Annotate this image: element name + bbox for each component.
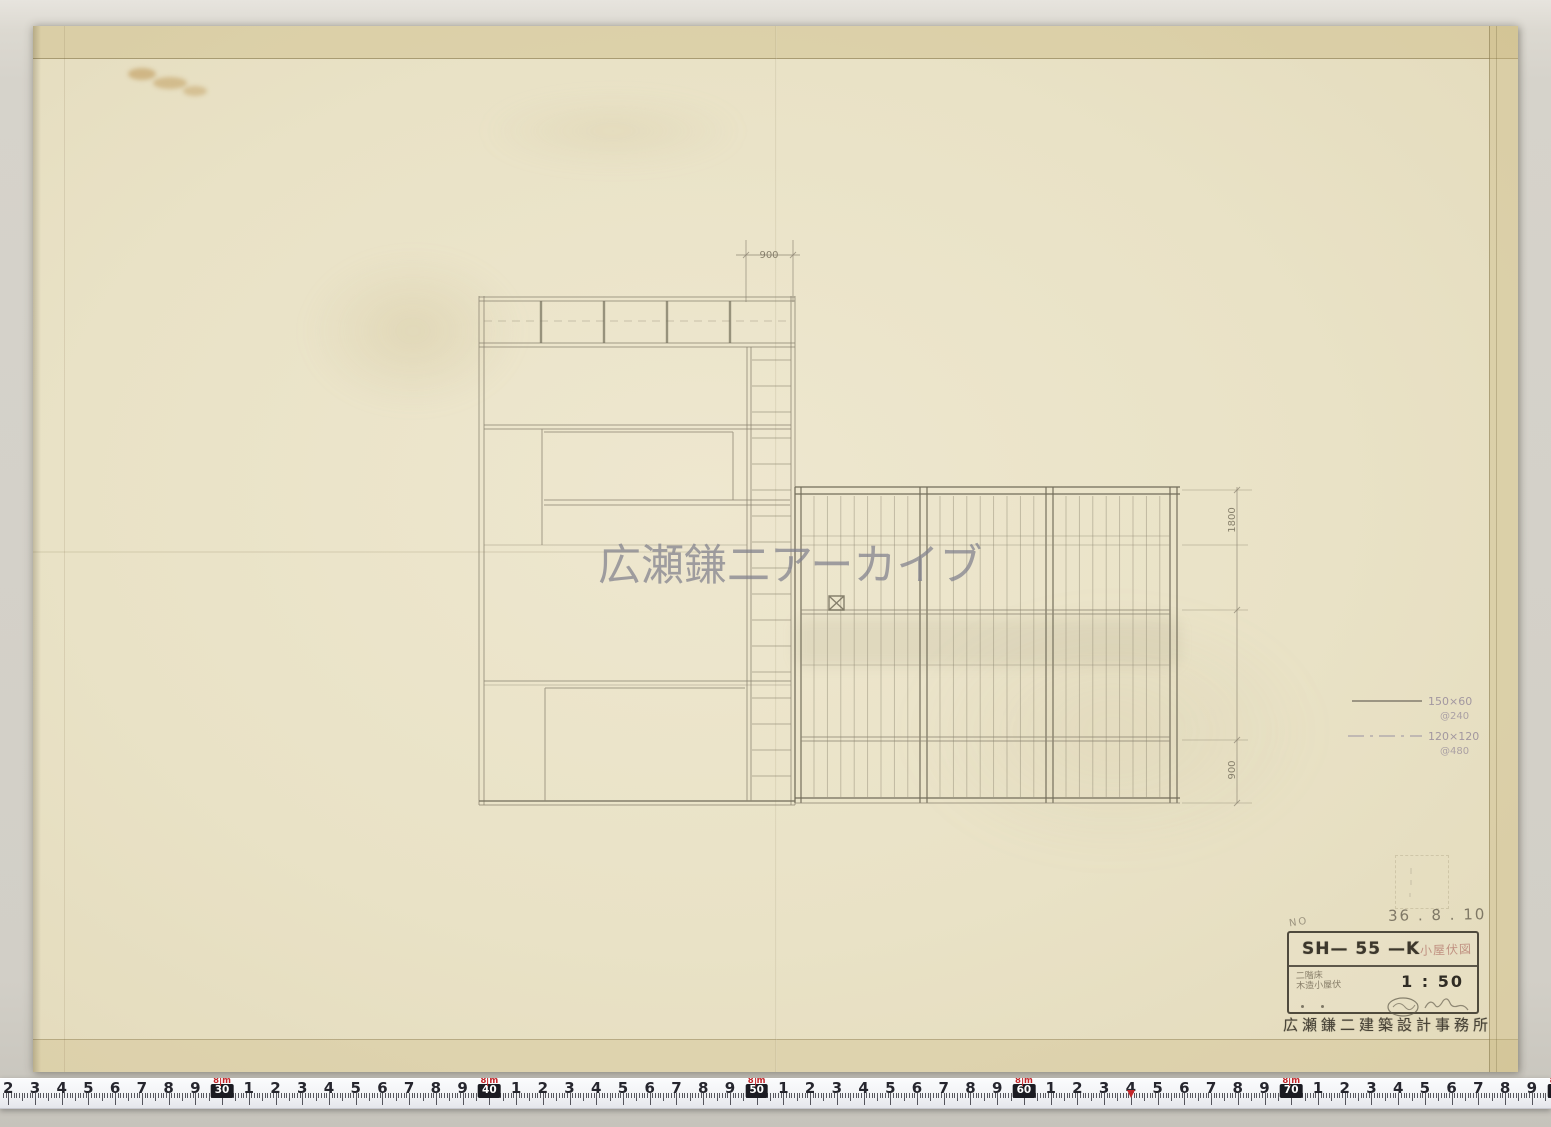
note-line-2: 木造小屋伏 (1296, 980, 1341, 992)
ruler-number: 9 (1527, 1079, 1537, 1097)
ruler-number: 2 (3, 1079, 13, 1097)
ruler-tick (1387, 1093, 1388, 1098)
ruler-tick (1305, 1093, 1306, 1101)
ruler-tick (54, 1093, 55, 1098)
ruler-number: 2 (1339, 1079, 1349, 1097)
ruler-tick (976, 1093, 977, 1098)
ruler-tick (1497, 1093, 1498, 1098)
ruler-tick (187, 1093, 188, 1098)
ruler-tick (1198, 1093, 1199, 1101)
ruler-tick (896, 1093, 897, 1098)
ruler-number: 6 (645, 1079, 655, 1097)
ruler-tick (588, 1093, 589, 1098)
ruler-tick (1061, 1093, 1062, 1098)
legend-spacing-1: @240 (1440, 711, 1469, 722)
ruler-tick (842, 1093, 843, 1098)
ruler-meter-flag: 8m (748, 1078, 766, 1086)
ruler-tick (342, 1093, 343, 1101)
ruler-tick (802, 1093, 803, 1098)
ruler-tick (1358, 1093, 1359, 1101)
ruler-tick (524, 1093, 525, 1098)
ruler-tick (401, 1093, 402, 1098)
ruler-tick (1059, 1093, 1060, 1098)
ruler-tick (508, 1093, 509, 1098)
ruler-tick (741, 1093, 742, 1098)
ruler-tick (1005, 1093, 1006, 1098)
ruler-tick (1412, 1093, 1413, 1101)
ruler-tick (174, 1093, 175, 1098)
ruler-number: 3 (564, 1079, 574, 1097)
ruler-tick (898, 1093, 899, 1098)
ruler-tick (639, 1093, 640, 1098)
ruler-tick (1142, 1093, 1143, 1098)
meter-flag-digit: 8 (1015, 1078, 1021, 1086)
ruler-number: 7 (137, 1079, 147, 1097)
ruler-tick (1323, 1093, 1324, 1098)
ruler-tick (906, 1093, 907, 1098)
title-block-top-row: SH— 55 —K 小屋伏図 (1289, 933, 1477, 967)
ruler-tick (1166, 1093, 1167, 1098)
ruler-tick (345, 1093, 346, 1098)
ruler-tick (447, 1093, 448, 1098)
ruler-tick (631, 1093, 632, 1098)
ruler-tick (1326, 1093, 1327, 1098)
ruler-tick (179, 1093, 180, 1098)
ruler-tick (254, 1093, 255, 1098)
ruler-tick (1093, 1093, 1094, 1098)
ruler-tick (238, 1093, 239, 1098)
ruler-tick (420, 1093, 421, 1098)
ruler-tick (153, 1093, 154, 1098)
ruler-number: 5 (885, 1079, 895, 1097)
ruler-tick (1470, 1093, 1471, 1098)
ruler-tick (444, 1093, 445, 1098)
ruler-tick (102, 1093, 103, 1101)
ruler-tick (848, 1093, 849, 1098)
ruler-tick (1224, 1093, 1225, 1101)
ruler-tick (529, 1093, 530, 1101)
ruler-tick (562, 1093, 563, 1098)
ruler-tick (94, 1093, 95, 1098)
ruler-tick (1227, 1093, 1228, 1098)
ruler-tick (46, 1093, 47, 1098)
ruler-tick (185, 1093, 186, 1098)
ruler-tick (22, 1093, 23, 1101)
ruler-tick (586, 1093, 587, 1098)
legend: 150×60 @240 120×120 @480 (1348, 695, 1479, 757)
tape-measure: 23456789308m123456789408m123456789508m12… (0, 1078, 1551, 1109)
ruler-tick (1361, 1093, 1362, 1098)
x-brace-symbol (829, 596, 844, 610)
ruler-number: 8 (1233, 1079, 1243, 1097)
ruler-number: 9 (725, 1079, 735, 1097)
ruler-tick (714, 1093, 715, 1098)
ruler-tick (909, 1093, 910, 1098)
ruler-tick (289, 1093, 290, 1101)
ruler-decade-box: 30 (211, 1084, 234, 1098)
ruler-tick (473, 1093, 474, 1098)
ruler-tick (1067, 1093, 1068, 1098)
ruler-tick (1537, 1093, 1538, 1098)
ruler-tick (67, 1093, 68, 1098)
right-upper-dimension-value: 1800 (1227, 507, 1238, 532)
ruler-tick (668, 1093, 669, 1098)
ruler-decade-box: 80 (1547, 1084, 1551, 1098)
ruler-tick (989, 1093, 990, 1098)
ruler-tick (398, 1093, 399, 1098)
ruler-tick (1492, 1093, 1493, 1101)
meter-flag-unit: m (1291, 1078, 1300, 1086)
ruler-tick (425, 1093, 426, 1098)
legend-spacing-2: @480 (1440, 746, 1469, 757)
ruler-tick (1441, 1093, 1442, 1098)
legend-label-1: 150×60 (1428, 695, 1472, 708)
ruler-tick (43, 1093, 44, 1098)
ruler-tick (612, 1093, 613, 1098)
legend-label-2: 120×120 (1428, 730, 1479, 743)
ruler-tick (316, 1093, 317, 1101)
ruler-tick (449, 1093, 450, 1101)
ruler-number: 7 (1473, 1079, 1483, 1097)
ruler-tick (1468, 1093, 1469, 1098)
ruler-number: 3 (1099, 1079, 1109, 1097)
ruler-tick (634, 1093, 635, 1098)
ruler-tick (1494, 1093, 1495, 1098)
ruler-tick (1310, 1093, 1311, 1098)
ruler-tick (1417, 1093, 1418, 1098)
ruler-tick (1278, 1093, 1279, 1101)
ruler-tick (441, 1093, 442, 1098)
ruler-tick (957, 1093, 958, 1101)
ruler-tick (711, 1093, 712, 1098)
ruler-tick (1112, 1093, 1113, 1098)
ruler-tick (209, 1093, 210, 1101)
ruler-tick (578, 1093, 579, 1098)
ruler-tick (687, 1093, 688, 1098)
ruler-tick (1216, 1093, 1217, 1098)
ruler-tick (743, 1093, 744, 1101)
ruler-tick (575, 1093, 576, 1098)
ruler-tick (131, 1093, 132, 1098)
ruler-tick (1109, 1093, 1110, 1098)
ruler-tick (773, 1093, 774, 1098)
ruler-tick (1377, 1093, 1378, 1098)
ruler-number: 3 (1366, 1079, 1376, 1097)
ruler-tick (257, 1093, 258, 1098)
ruler-tick (1096, 1093, 1097, 1098)
ruler-tick (318, 1093, 319, 1098)
ruler-number: 9 (1259, 1079, 1269, 1097)
ruler-tick (1243, 1093, 1244, 1098)
ruler-tick (126, 1093, 127, 1098)
ruler-meter-flag: 8m (1015, 1078, 1033, 1086)
ruler-tick (104, 1093, 105, 1098)
ruler-number: 3 (832, 1079, 842, 1097)
ruler-tick (75, 1093, 76, 1101)
ruler-tick (880, 1093, 881, 1098)
ruler-tick (981, 1093, 982, 1098)
pencil-dot (1321, 1005, 1324, 1008)
archive-watermark: 広瀬鎌二アーカイブ (598, 531, 982, 593)
ruler-tick (1355, 1093, 1356, 1098)
ruler-tick (1219, 1093, 1220, 1098)
ruler-tick (364, 1093, 365, 1098)
ruler-tick (455, 1093, 456, 1098)
ruler-number: 2 (538, 1079, 548, 1097)
ruler-number: 4 (1393, 1079, 1403, 1097)
ruler-tick (259, 1093, 260, 1098)
ruler-tick (829, 1093, 830, 1098)
meter-flag-divider (1022, 1078, 1023, 1086)
ruler-tick (823, 1093, 824, 1101)
ruler-tick (1256, 1093, 1257, 1098)
ruler-tick (128, 1093, 129, 1101)
ruler-tick (952, 1093, 953, 1098)
ruler-number: 4 (591, 1079, 601, 1097)
ruler-tick (1465, 1093, 1466, 1101)
ruler-tick (1521, 1093, 1522, 1098)
ruler-tick (954, 1093, 955, 1098)
ruler-tick (1176, 1093, 1177, 1098)
ruler-tick (1404, 1093, 1405, 1098)
ruler-tick (70, 1093, 71, 1098)
ruler-tick (310, 1093, 311, 1098)
ruler-number: 6 (1179, 1079, 1189, 1097)
ruler-tick (532, 1093, 533, 1098)
ruler-tick (1516, 1093, 1517, 1098)
ruler-tick (428, 1093, 429, 1098)
ruler-tick (393, 1093, 394, 1098)
ruler-tick (267, 1093, 268, 1098)
ruler-tick (1246, 1093, 1247, 1098)
ruler-tick (1251, 1093, 1252, 1101)
ruler-tick (818, 1093, 819, 1098)
ruler-tick (417, 1093, 418, 1098)
ruler-number: 3 (297, 1079, 307, 1097)
ruler-tick (1436, 1093, 1437, 1098)
ruler-tick (396, 1093, 397, 1101)
ruler-tick (155, 1093, 156, 1101)
ruler-number: 2 (270, 1079, 280, 1097)
ruler-tick (1171, 1093, 1172, 1101)
ruler-tick (150, 1093, 151, 1098)
ruler-tick (96, 1093, 97, 1098)
ruler-tick (292, 1093, 293, 1098)
ruler-number: 1 (778, 1079, 788, 1097)
ruler-tick (24, 1093, 25, 1098)
ruler-tick (1524, 1093, 1525, 1098)
ruler-tick (1379, 1093, 1380, 1098)
ruler-tick (123, 1093, 124, 1098)
ruler-tick (1163, 1093, 1164, 1098)
ruler-tick (1174, 1093, 1175, 1098)
ruler-tick (468, 1093, 469, 1098)
ruler-tick (161, 1093, 162, 1098)
ruler-tick (853, 1093, 854, 1098)
ruler-tick (1230, 1093, 1231, 1098)
ruler-tick (40, 1093, 41, 1098)
meter-flag-divider (487, 1078, 488, 1086)
ruler-tick (265, 1093, 266, 1098)
ruler-tick (877, 1093, 878, 1101)
right-lower-dimension-value: 900 (1227, 760, 1238, 779)
ruler-tick (1117, 1093, 1118, 1101)
ruler-tick (1273, 1093, 1274, 1098)
ruler-tick (78, 1093, 79, 1098)
meter-flag-digit: 8 (213, 1078, 219, 1086)
ruler-tick (604, 1093, 605, 1098)
meter-flag-digit: 8 (1282, 1078, 1288, 1086)
ruler-tick (791, 1093, 792, 1098)
ruler-tick (719, 1093, 720, 1098)
ruler-red-arrow-marker (1127, 1090, 1135, 1098)
ruler-number: 9 (992, 1079, 1002, 1097)
ruler-tick (1037, 1093, 1038, 1101)
ruler-tick (925, 1093, 926, 1098)
ruler-tick (286, 1093, 287, 1098)
ruler-tick (1385, 1093, 1386, 1101)
ruler-tick (241, 1093, 242, 1098)
ruler-number: 7 (939, 1079, 949, 1097)
ruler-tick (182, 1093, 183, 1101)
ruler-tick (80, 1093, 81, 1098)
ruler-meter-flag: 8m (213, 1078, 231, 1086)
ruler-tick (1120, 1093, 1121, 1098)
ruler-tick (850, 1093, 851, 1101)
ruler-tick (1334, 1093, 1335, 1098)
ruler-tick (821, 1093, 822, 1098)
ruler-tick (874, 1093, 875, 1098)
ruler-tick (928, 1093, 929, 1098)
ruler-tick (1195, 1093, 1196, 1098)
meter-flag-digit: 8 (480, 1078, 486, 1086)
ruler-tick (27, 1093, 28, 1098)
ruler-tick (717, 1093, 718, 1101)
ruler-number: 7 (1206, 1079, 1216, 1097)
ruler-number: 5 (350, 1079, 360, 1097)
ruler-number: 8 (163, 1079, 173, 1097)
meter-flag-divider (220, 1078, 221, 1086)
ruler-tick (1064, 1093, 1065, 1101)
ruler-tick (610, 1093, 611, 1101)
ruler-tick (738, 1093, 739, 1098)
ruler-tick (869, 1093, 870, 1098)
ruler-number: 4 (56, 1079, 66, 1097)
ruler-tick (1484, 1093, 1485, 1098)
ruler-tick (789, 1093, 790, 1098)
ruler-tick (1043, 1093, 1044, 1098)
ruler-tick (722, 1093, 723, 1098)
ruler-number: 2 (805, 1079, 815, 1097)
ruler-number: 4 (858, 1079, 868, 1097)
ruler-tick (1088, 1093, 1089, 1098)
ruler-tick (388, 1093, 389, 1098)
red-stamp-note: 小屋伏図 (1420, 940, 1473, 959)
ruler-tick (666, 1093, 667, 1098)
ruler-tick (423, 1093, 424, 1101)
ruler-number: 1 (1045, 1079, 1055, 1097)
ruler-tick (735, 1093, 736, 1098)
ruler-tick (1414, 1093, 1415, 1098)
ruler-tick (826, 1093, 827, 1098)
ruler-tick (48, 1093, 49, 1101)
scale-value: 1 : 50 (1401, 972, 1464, 991)
ruler-tick (334, 1093, 335, 1098)
ruler-tick (936, 1093, 937, 1098)
ruler-tick (556, 1093, 557, 1101)
ruler-tick (201, 1093, 202, 1098)
ruler-tick (72, 1093, 73, 1098)
ruler-tick (580, 1093, 581, 1098)
ruler-tick (1382, 1093, 1383, 1098)
ruler-tick (366, 1093, 367, 1098)
ruler-tick (206, 1093, 207, 1098)
ruler-tick (1150, 1093, 1151, 1098)
ruler-tick (559, 1093, 560, 1098)
ruler-tick (120, 1093, 121, 1098)
ruler-tick (361, 1093, 362, 1098)
ruler-tick (770, 1093, 771, 1101)
ruler-tick (1275, 1093, 1276, 1098)
ruler-tick (281, 1093, 282, 1098)
ruler-tick (882, 1093, 883, 1098)
ruler-tick (414, 1093, 415, 1098)
ruler-tick (452, 1093, 453, 1098)
ruler-tick (904, 1093, 905, 1101)
ruler-number: 5 (618, 1079, 628, 1097)
ruler-tick (1457, 1093, 1458, 1098)
ruler-tick (1510, 1093, 1511, 1098)
ruler-tick (158, 1093, 159, 1098)
ruler-tick (548, 1093, 549, 1098)
ruler-number: 8 (698, 1079, 708, 1097)
ruler-tick (369, 1093, 370, 1101)
ruler-decade-box: 50 (745, 1084, 768, 1098)
ruler-tick (1203, 1093, 1204, 1098)
ruler-tick (607, 1093, 608, 1098)
ruler-tick (1056, 1093, 1057, 1098)
ruler-decade-box: 70 (1280, 1084, 1303, 1098)
ruler-tick (1363, 1093, 1364, 1098)
ruler-tick (235, 1093, 236, 1101)
drawing-code: SH— 55 —K (1302, 939, 1420, 959)
ruler-tick (1085, 1093, 1086, 1098)
ruler-tick (14, 1093, 15, 1098)
ruler-tick (1540, 1093, 1541, 1098)
ruler-tick (372, 1093, 373, 1098)
ruler-number: 8 (431, 1079, 441, 1097)
ruler-tick (1222, 1093, 1223, 1098)
meter-flag-divider (1289, 1078, 1290, 1086)
ruler-tick (1144, 1093, 1145, 1101)
handwritten-date: 36 . 8 . 10 (1388, 905, 1487, 925)
ruler-tick (134, 1093, 135, 1098)
meter-flag-unit: m (489, 1078, 498, 1086)
ruler-tick (1462, 1093, 1463, 1098)
ruler-number: 1 (1313, 1079, 1323, 1097)
ruler-tick (19, 1093, 20, 1098)
ruler-tick (551, 1093, 552, 1098)
ruler-tick (583, 1093, 584, 1101)
ruler-tick (695, 1093, 696, 1098)
ruler-number: 5 (1152, 1079, 1162, 1097)
ruler-tick (177, 1093, 178, 1098)
ruler-tick (1115, 1093, 1116, 1098)
title-block-bottom-row: 二階床 木造小屋伏 1 : 50 (1289, 967, 1477, 1012)
ruler-tick (815, 1093, 816, 1098)
meter-flag-unit: m (757, 1078, 766, 1086)
ruler-tick (1003, 1093, 1004, 1098)
